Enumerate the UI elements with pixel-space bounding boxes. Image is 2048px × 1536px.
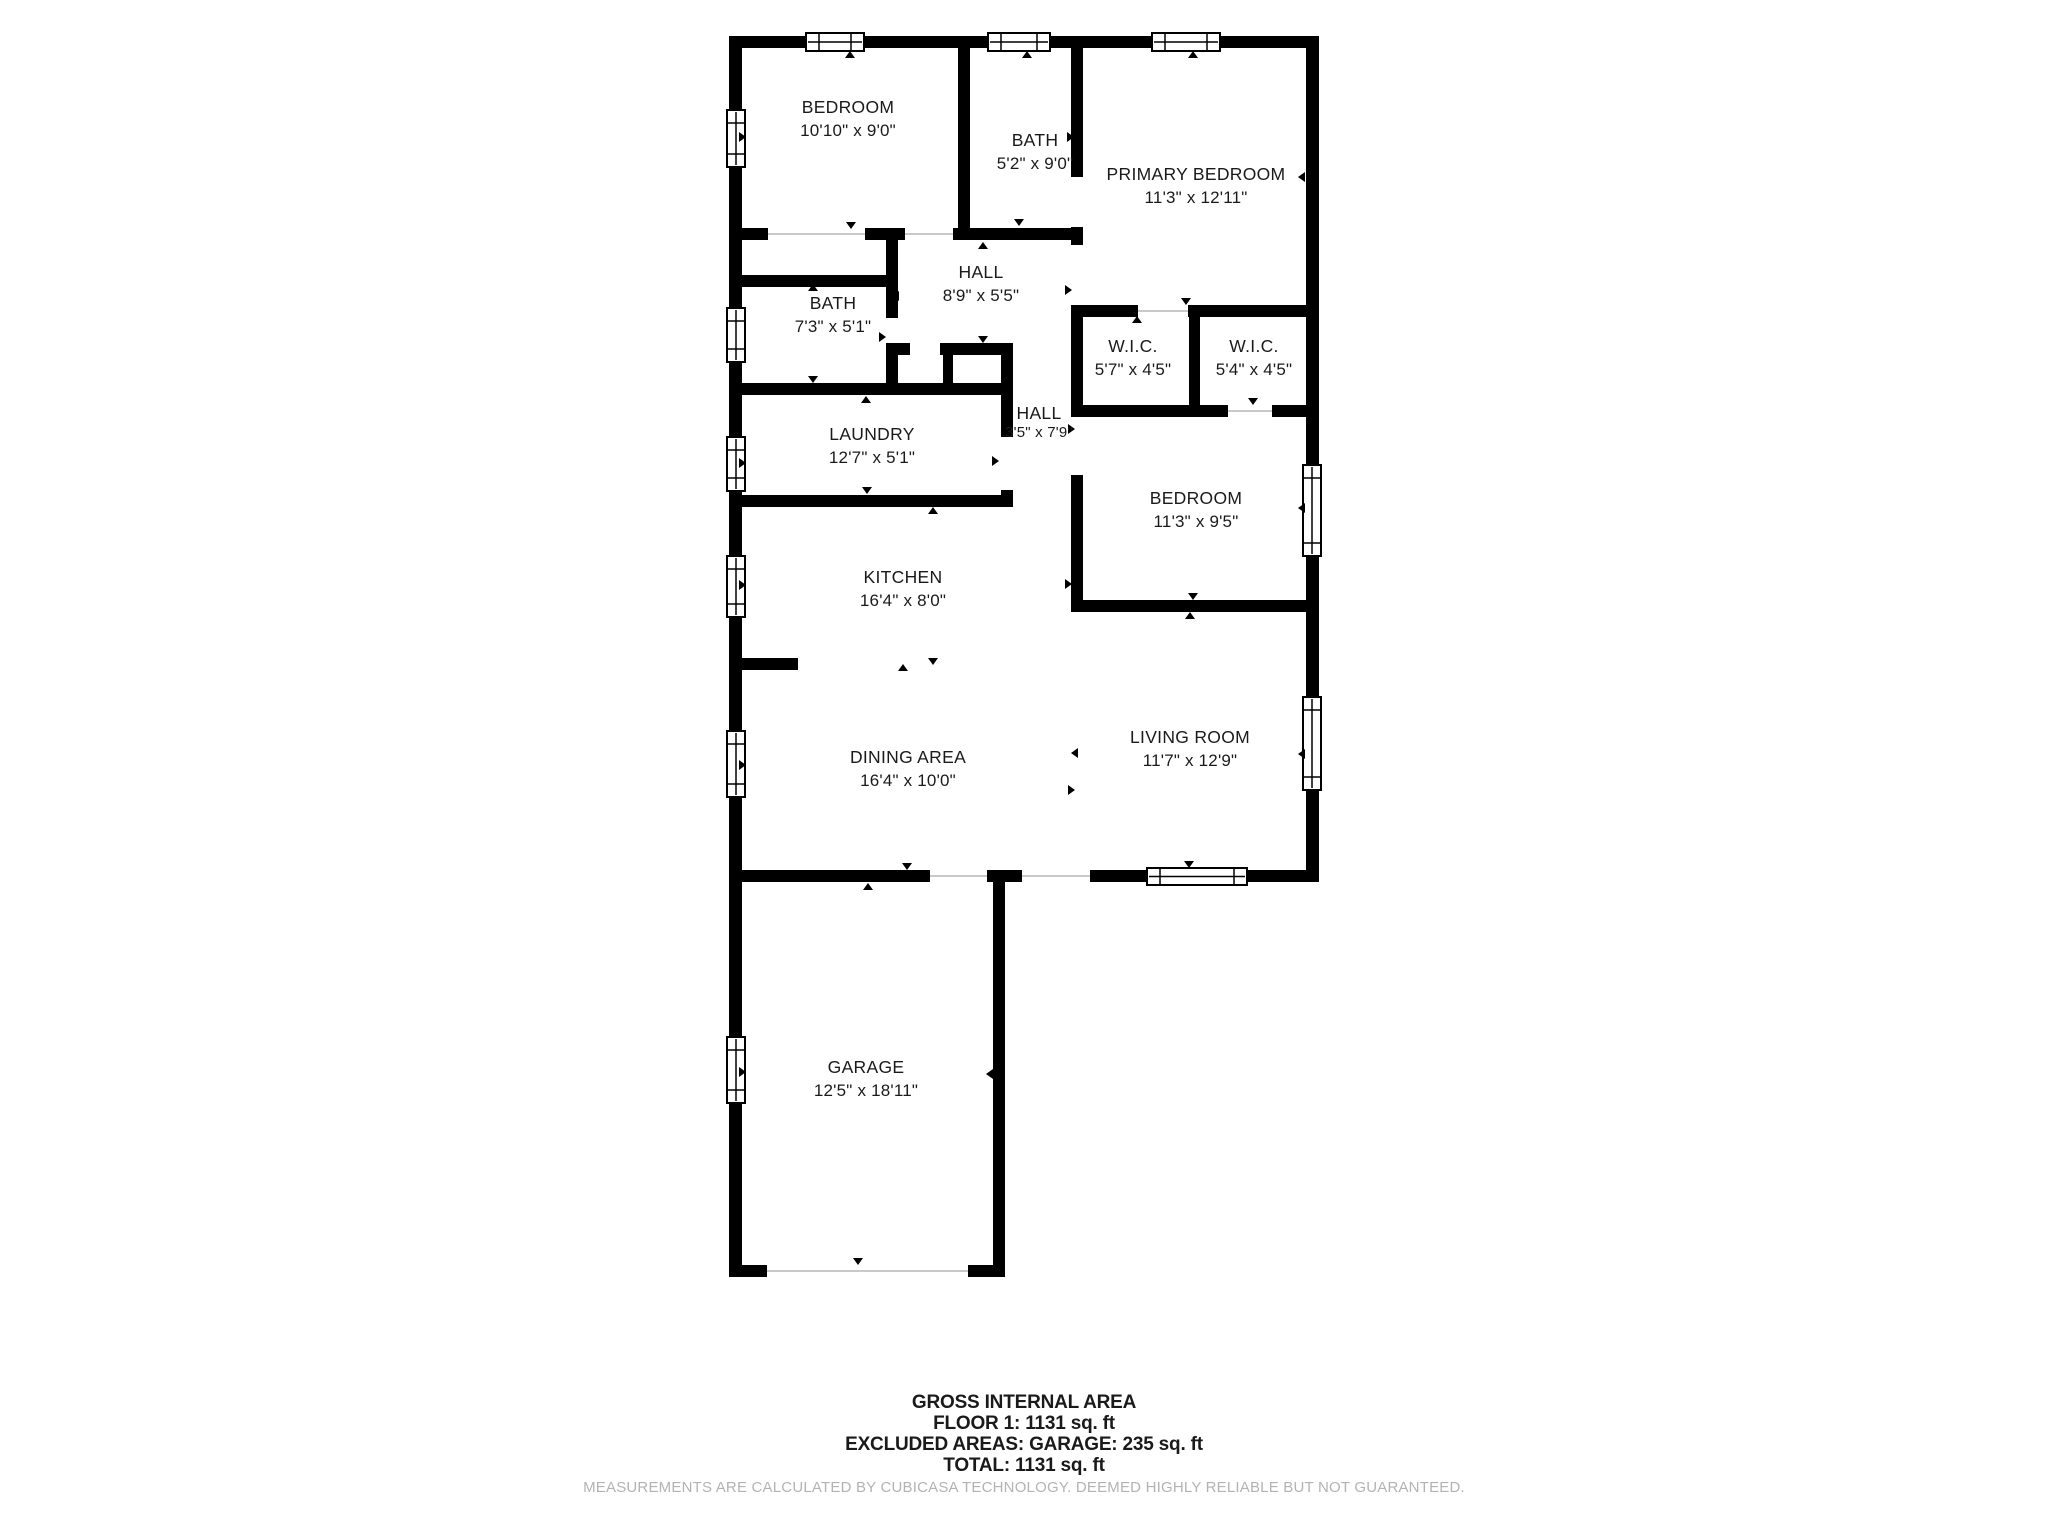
wall — [886, 287, 898, 318]
door-marker — [928, 507, 938, 514]
door-marker — [1185, 612, 1195, 619]
door-marker — [928, 658, 938, 665]
wall — [968, 1265, 1005, 1277]
room-name: LIVING ROOM — [1130, 727, 1250, 747]
door-marker — [853, 1258, 863, 1265]
room-dimensions: 16'4" x 8'0" — [860, 591, 946, 610]
room-name: BATH — [1012, 130, 1059, 150]
room-dimensions: 11'3" x 12'11" — [1145, 188, 1248, 207]
door-marker — [861, 396, 871, 403]
door-marker — [1022, 51, 1032, 58]
wall — [865, 228, 905, 240]
wall — [953, 228, 1083, 240]
door-marker — [808, 376, 818, 383]
room-dimensions: 5'4" x 4'5" — [1216, 360, 1293, 379]
room-dimensions: 7'3" x 5'1" — [795, 317, 872, 336]
wall — [729, 383, 1013, 395]
room-dimensions: 10'10" x 9'0" — [800, 121, 896, 140]
room-dimensions: 12'7" x 5'1" — [829, 448, 915, 467]
door-marker — [1298, 172, 1305, 182]
wall — [742, 658, 798, 670]
room-dimensions: 11'3" x 9'5" — [1154, 512, 1239, 531]
door-marker — [879, 332, 886, 342]
door-marker — [863, 883, 873, 890]
door-marker — [978, 336, 988, 343]
room-name: BEDROOM — [802, 97, 895, 117]
room-name: BATH — [810, 293, 857, 313]
door-marker — [862, 487, 872, 494]
door-marker — [1248, 398, 1258, 405]
room-dimensions: 5'7" x 4'5" — [1095, 360, 1172, 379]
door-marker — [1188, 593, 1198, 600]
room-dimensions: 8'9" x 5'5" — [943, 286, 1020, 305]
door-marker — [1068, 785, 1075, 795]
wall — [886, 343, 910, 355]
measurement-disclaimer: MEASUREMENTS ARE CALCULATED BY CUBICASA … — [0, 1479, 2048, 1496]
door-marker — [1298, 749, 1305, 759]
wall — [1272, 405, 1319, 417]
door-marker — [1298, 503, 1305, 513]
wall — [958, 48, 970, 229]
excluded-areas: EXCLUDED AREAS: GARAGE: 235 sq. ft — [0, 1434, 2048, 1455]
room-dimensions: 12'5" x 18'11" — [814, 1081, 918, 1100]
room-name: KITCHEN — [864, 567, 943, 587]
room-dimensions: 11'7" x 12'9" — [1143, 751, 1238, 770]
door-marker — [845, 51, 855, 58]
door-marker — [1188, 51, 1198, 58]
floorplan-svg: BEDROOM10'10" x 9'0"BATH5'2" x 9'0"PRIMA… — [0, 0, 2048, 1536]
room-name: GARAGE — [828, 1057, 905, 1077]
room-dimensions: 3'5" x 7'9" — [1005, 424, 1073, 441]
wall — [1090, 870, 1150, 882]
room-name: DINING AREA — [850, 747, 966, 767]
wall — [1245, 870, 1319, 882]
wall — [729, 870, 930, 882]
door-marker — [898, 664, 908, 671]
room-name: W.I.C. — [1108, 336, 1157, 356]
wall — [729, 495, 1013, 507]
wall — [1188, 305, 1319, 317]
room-dimensions: 16'4" x 10'0" — [860, 771, 956, 790]
room-name: HALL — [959, 262, 1004, 282]
door-marker — [1014, 219, 1024, 226]
wall — [1001, 343, 1013, 437]
wall — [1071, 317, 1083, 405]
room-name: W.I.C. — [1229, 336, 1278, 356]
total-area: TOTAL: 1131 sq. ft — [0, 1455, 2048, 1476]
wall — [1071, 475, 1083, 612]
door-marker — [986, 1069, 993, 1079]
door-marker — [992, 456, 999, 466]
door-marker — [1065, 285, 1072, 295]
door-marker — [846, 222, 856, 229]
door-marker — [1071, 748, 1078, 758]
door-marker — [1181, 298, 1191, 305]
wall — [1189, 317, 1200, 417]
room-name: LAUNDRY — [829, 424, 914, 444]
room-dimensions: 5'2" x 9'0" — [997, 154, 1074, 173]
door-marker — [978, 242, 988, 249]
wall — [987, 870, 1022, 882]
wall — [993, 882, 1005, 1277]
door-marker — [902, 863, 912, 870]
room-name: BEDROOM — [1150, 488, 1243, 508]
wall — [729, 228, 768, 240]
door-marker — [1184, 861, 1194, 868]
gross-internal-area-title: GROSS INTERNAL AREA — [0, 1392, 2048, 1413]
room-name: HALL — [1017, 403, 1062, 423]
door-marker — [1065, 579, 1072, 589]
wall — [1071, 600, 1319, 612]
room-name: PRIMARY BEDROOM — [1107, 164, 1286, 184]
wall — [1071, 305, 1138, 317]
floor-1-area: FLOOR 1: 1131 sq. ft — [0, 1413, 2048, 1434]
area-summary: GROSS INTERNAL AREA FLOOR 1: 1131 sq. ft… — [0, 1392, 2048, 1496]
wall — [1071, 405, 1228, 417]
floorplan-page: BEDROOM10'10" x 9'0"BATH5'2" x 9'0"PRIMA… — [0, 0, 2048, 1536]
wall — [729, 1265, 767, 1277]
door-marker — [1132, 316, 1142, 323]
